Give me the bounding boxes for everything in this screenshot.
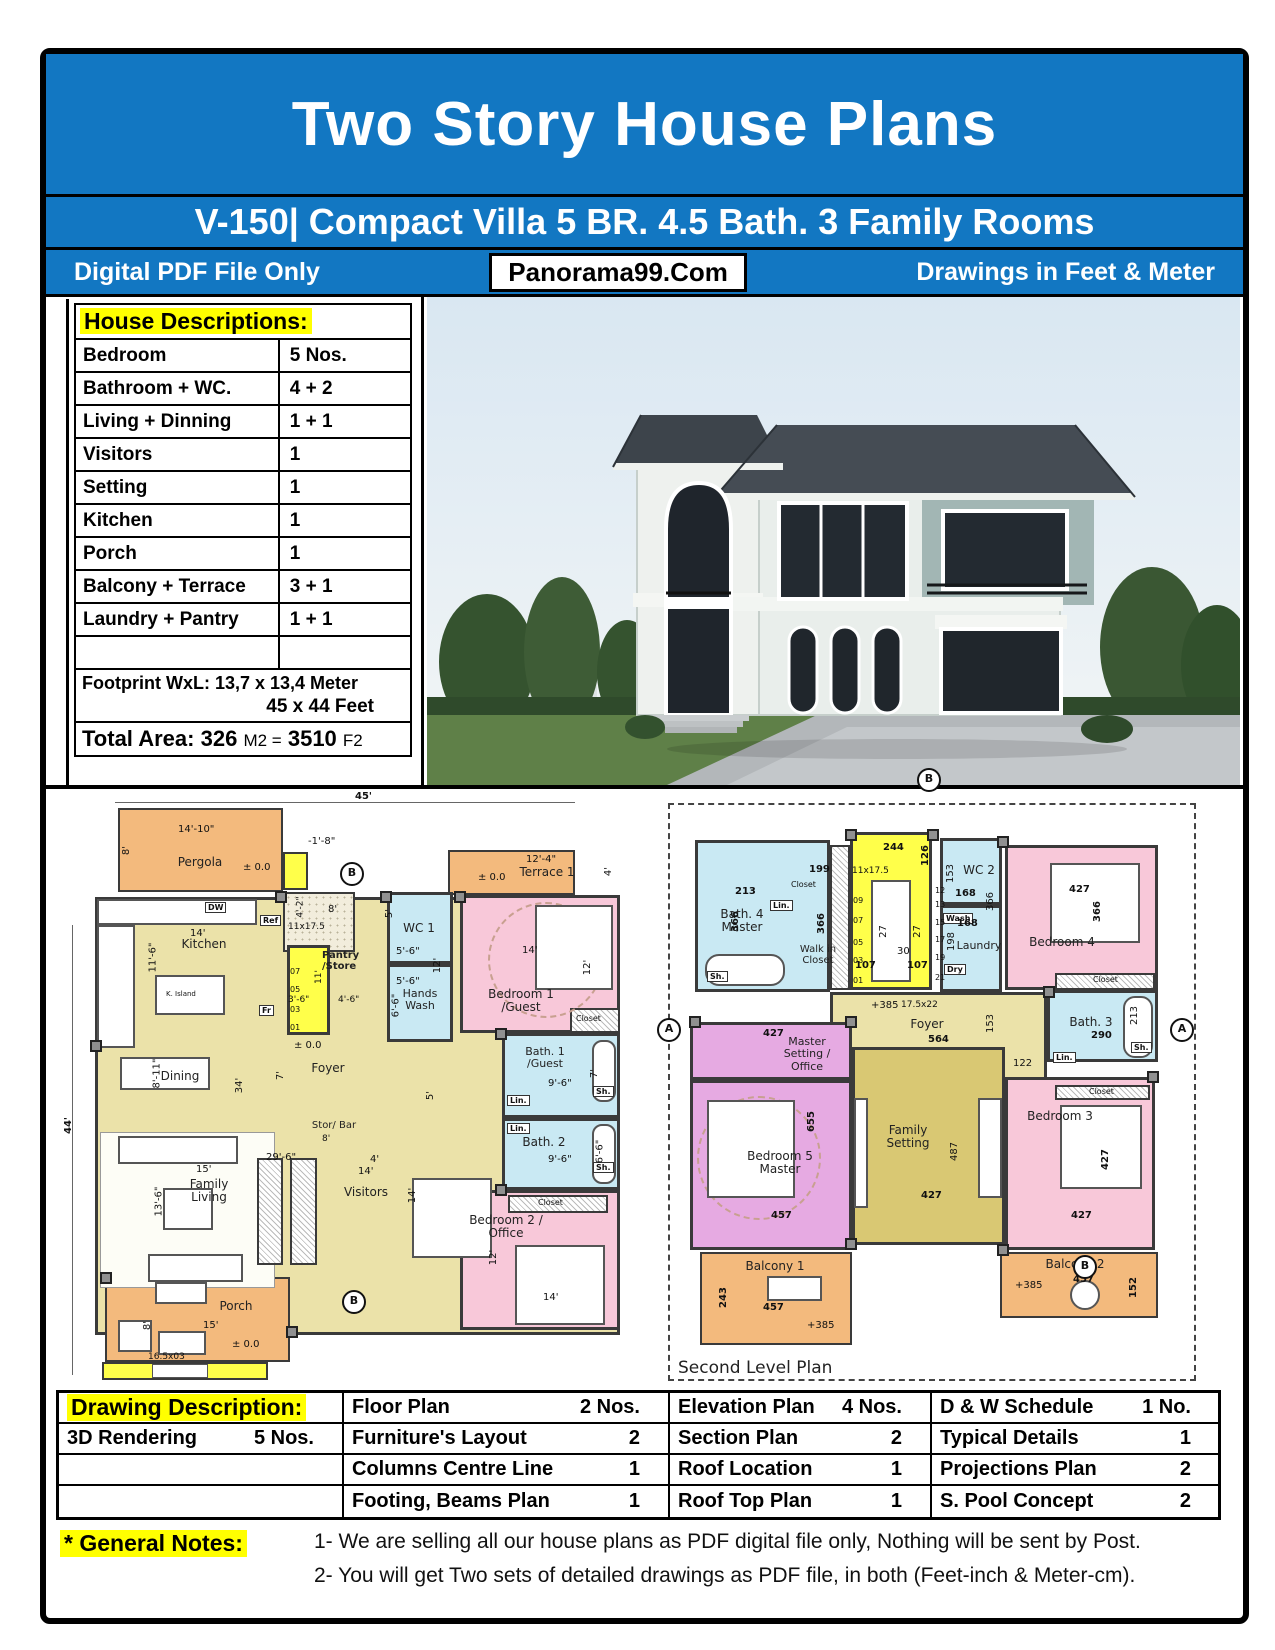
row-value: 1 xyxy=(280,510,301,532)
table-cell: Projections Plan2 xyxy=(932,1455,1219,1486)
cell-label: Elevation Plan xyxy=(678,1396,815,1419)
flyer-page: Two Story House Plans V-150| Compact Vil… xyxy=(0,0,1275,1650)
flyer-frame: Two Story House Plans V-150| Compact Vil… xyxy=(40,48,1249,1624)
column xyxy=(997,1244,1009,1256)
column xyxy=(380,891,392,903)
pillar xyxy=(257,1158,283,1265)
room-label: Bath. 3 xyxy=(1063,1016,1119,1029)
row-value: 3 + 1 xyxy=(280,576,333,598)
cell-value: 2 xyxy=(1180,1458,1211,1481)
dim-label: 15' xyxy=(203,1320,218,1331)
stair-number: 12 xyxy=(935,886,945,895)
second-level-plan: Bath. 4 Master Walk in Closet WC 2 Laund… xyxy=(645,768,1225,1393)
table-title-row: House Descriptions: xyxy=(76,305,410,338)
balcony-sofa xyxy=(767,1276,822,1301)
dim-label: 14' xyxy=(358,1166,373,1177)
row-value: 1 + 1 xyxy=(280,609,333,631)
note-line-2: 2- You will get Two sets of detailed dra… xyxy=(314,1564,1135,1588)
dim-label: 15' xyxy=(196,1164,211,1175)
row-label: Bedroom xyxy=(76,340,280,371)
cell-label: Projections Plan xyxy=(940,1458,1097,1481)
dim-label: 199 xyxy=(809,864,830,875)
stair-number: 01 xyxy=(290,1023,300,1032)
dim-label: 12' xyxy=(488,1250,499,1265)
pillar xyxy=(290,1158,317,1265)
walkin-wardrobe xyxy=(830,845,850,990)
dim-label: 427 xyxy=(1069,884,1090,895)
table-cell: 3D Rendering5 Nos. xyxy=(59,1424,344,1455)
table-row: Bathroom + WC.4 + 2 xyxy=(76,371,410,404)
dim-label: 126 xyxy=(920,845,931,866)
linen-tag: Lin. xyxy=(507,1123,530,1134)
dim-label: 4'-6" xyxy=(338,995,359,1005)
table-row: Balcony + Terrace3 + 1 xyxy=(76,569,410,602)
stair-number: 17 xyxy=(935,935,945,944)
dim-label: 244 xyxy=(883,842,904,853)
dim-label: 11' xyxy=(314,970,324,984)
cell-label: Typical Details xyxy=(940,1427,1079,1450)
shower-tag: Sh. xyxy=(593,1086,614,1097)
cell-label: 3D Rendering xyxy=(67,1427,197,1450)
column xyxy=(845,1016,857,1028)
dim-label: 13'-6" xyxy=(154,1186,165,1216)
column xyxy=(689,1016,701,1028)
closet-label: Closet xyxy=(576,1014,601,1023)
total-area-m2: 326 xyxy=(201,726,238,751)
dim-label: 27 xyxy=(878,925,889,938)
dim-label: 9'-6" xyxy=(548,1154,572,1165)
dim-label: 213 xyxy=(735,886,756,897)
shower-tag: Sh. xyxy=(593,1162,614,1173)
table-row-empty xyxy=(76,635,410,668)
island-label: K. Island xyxy=(166,990,196,998)
sofa xyxy=(148,1254,243,1282)
cell-label: Section Plan xyxy=(678,1427,798,1450)
cell-label: Columns Centre Line xyxy=(352,1458,553,1481)
kitchen-counter-left xyxy=(97,925,135,1048)
column xyxy=(286,1326,298,1338)
column xyxy=(845,829,857,841)
table-cell: Roof Location1 xyxy=(670,1455,932,1486)
dim-label: 16.5x03 xyxy=(148,1352,185,1362)
dim-label: 8' xyxy=(328,904,337,915)
dim-label: 243 xyxy=(718,1287,729,1308)
shower-tag: Sh. xyxy=(707,971,728,982)
dim-label: 8' xyxy=(121,846,132,855)
room-pergola xyxy=(118,808,283,892)
stair-number: 07 xyxy=(853,916,863,925)
general-notes-title: * General Notes: xyxy=(60,1530,247,1557)
dim-label: 29'-6" xyxy=(266,1152,296,1163)
units-note: Drawings in Feet & Meter xyxy=(916,258,1215,287)
row-value: 1 xyxy=(280,444,301,466)
dim-label: 14' xyxy=(522,945,537,956)
column xyxy=(454,891,466,903)
column xyxy=(90,1040,102,1052)
table-cell: Roof Top Plan1 xyxy=(670,1486,932,1517)
website-link[interactable]: Panorama99.Com xyxy=(489,253,747,292)
row-label: Kitchen xyxy=(76,505,280,536)
row-value: 1 xyxy=(280,543,301,565)
page-title: Two Story House Plans xyxy=(292,89,997,160)
dim-label: 4' xyxy=(370,1154,379,1165)
dim-label: 14' xyxy=(543,1292,558,1303)
dim-label: 153 xyxy=(945,864,956,883)
row-label xyxy=(76,637,280,668)
dim-label: 11x17.5 xyxy=(852,866,889,876)
stair-number: 03 xyxy=(290,1005,300,1014)
dim-label: 366 xyxy=(816,913,827,934)
freezer-tag: Fr xyxy=(259,1005,274,1016)
dim-label: 366 xyxy=(1092,901,1103,922)
stair-number: 09 xyxy=(853,896,863,905)
room-label: Pantry /Store xyxy=(322,950,372,972)
dim-label: 564 xyxy=(928,1034,949,1045)
table-cell xyxy=(59,1455,344,1486)
row-value: 1 xyxy=(280,477,301,499)
dim-label: 152 xyxy=(1128,1277,1139,1298)
info-row: House Descriptions: Bedroom5 Nos. Bathro… xyxy=(46,297,1243,789)
general-notes: * General Notes: 1- We are selling all o… xyxy=(46,1522,1243,1606)
sofa xyxy=(978,1098,1002,1198)
room-label: Bedroom 5 Master xyxy=(741,1150,819,1177)
room-label: Family Setting xyxy=(877,1124,939,1151)
stair-number: 03 xyxy=(853,956,863,965)
cell-value: 2 xyxy=(891,1427,922,1450)
table-cell xyxy=(59,1486,344,1517)
table-row: Setting1 xyxy=(76,470,410,503)
section-marker-a: A xyxy=(657,1018,681,1042)
porch-step-center xyxy=(152,1364,208,1378)
room-label: Master Setting / Office xyxy=(767,1036,847,1073)
linen-tag: Lin. xyxy=(1053,1052,1076,1063)
row-value: 5 Nos. xyxy=(280,345,347,367)
house-descriptions-title: House Descriptions: xyxy=(80,308,312,334)
footprint-row: Footprint WxL: 13,7 x 13,4 Meter 45 x 44… xyxy=(76,668,410,721)
room-label: WC 2 xyxy=(957,864,1001,877)
dim-label: 8'-11" xyxy=(152,1058,163,1088)
cell-label: Furniture's Layout xyxy=(352,1427,527,1450)
dim-label: 427 xyxy=(1071,1210,1092,1221)
dim-label: 30 xyxy=(897,946,910,957)
linen-tag: Lin. xyxy=(770,900,793,911)
dim-line xyxy=(115,802,575,803)
dim-label: 153 xyxy=(985,1014,996,1033)
kitchen-counter xyxy=(97,899,257,925)
room-label: Porch xyxy=(208,1300,264,1313)
header-title-band: Two Story House Plans xyxy=(46,54,1243,197)
room-label: Bedroom 3 xyxy=(1019,1110,1101,1123)
dim-label: 9'-6" xyxy=(548,1078,572,1089)
table-row: Bedroom5 Nos. xyxy=(76,338,410,371)
row-label: Setting xyxy=(76,472,280,503)
header-subtitle-band: V-150| Compact Villa 5 BR. 4.5 Bath. 3 F… xyxy=(46,197,1243,250)
dim-label: 427 xyxy=(921,1190,942,1201)
stair-number: 21 xyxy=(935,973,945,982)
cell-label: S. Pool Concept xyxy=(940,1490,1093,1513)
cell-label: Roof Top Plan xyxy=(678,1490,812,1513)
bed xyxy=(535,905,613,990)
dim-label: -1'-8" xyxy=(308,836,335,847)
table-cell: S. Pool Concept2 xyxy=(932,1486,1219,1517)
table-cell: Furniture's Layout2 xyxy=(344,1424,670,1455)
stair-number: 13 xyxy=(935,900,945,909)
dishwasher-tag: DW xyxy=(205,902,226,913)
dim-label: 168 xyxy=(957,918,978,929)
sofa xyxy=(118,1136,238,1164)
divider xyxy=(66,299,69,785)
room-label: Pergola xyxy=(168,856,232,869)
dim-label: 168 xyxy=(955,888,976,899)
dim-label: 213 xyxy=(1129,1006,1140,1025)
cell-value: 1 xyxy=(629,1490,660,1513)
pdf-only-note: Digital PDF File Only xyxy=(74,258,320,287)
cell-value: 4 Nos. xyxy=(842,1396,922,1419)
house-descriptions-panel: House Descriptions: Bedroom5 Nos. Bathro… xyxy=(46,297,424,785)
cell-value: 1 xyxy=(1180,1427,1211,1450)
dim-label: 7' xyxy=(275,1071,286,1080)
dim-label: 198 xyxy=(946,932,957,951)
entry-steps xyxy=(283,852,308,890)
section-marker-b: B xyxy=(340,862,364,886)
cell-label: Roof Location xyxy=(678,1458,812,1481)
note-line-1: 1- We are selling all our house plans as… xyxy=(314,1530,1141,1554)
dim-label: 12' xyxy=(582,960,593,975)
room-label: Bedroom 2 / Office xyxy=(462,1214,550,1241)
room-label: Terrace 1 xyxy=(512,866,582,879)
dim-label: 8' xyxy=(142,1321,153,1330)
column xyxy=(1147,1071,1159,1083)
stair-number: 15 xyxy=(935,918,945,927)
column xyxy=(997,836,1009,848)
room-label: Balcony 1 xyxy=(737,1260,813,1273)
dim-label: ± 0.0 xyxy=(232,1339,259,1350)
cell-value: 1 xyxy=(891,1490,922,1513)
table-cell: Columns Centre Line1 xyxy=(344,1455,670,1486)
room-label: Bedroom 4 xyxy=(1023,936,1101,949)
dim-label: 5'-6" xyxy=(396,946,420,957)
room-label: WC 1 xyxy=(396,922,442,935)
table-row: Porch1 xyxy=(76,536,410,569)
dim-label: +385 xyxy=(1015,1280,1042,1291)
dim-label: 5' xyxy=(425,1091,436,1100)
column xyxy=(495,1028,507,1040)
table-cell: Drawing Description: xyxy=(59,1393,344,1424)
dim-label: 457 xyxy=(763,1302,784,1313)
dim-label: 7' xyxy=(589,1069,600,1078)
row-value: 4 + 2 xyxy=(280,378,333,400)
bed xyxy=(515,1245,605,1325)
shower-tag: Sh. xyxy=(1131,1042,1152,1053)
dim-label: 8' xyxy=(322,1134,330,1144)
house-rendering-photo xyxy=(427,297,1240,785)
row-label: Laundry + Pantry xyxy=(76,604,280,635)
cell-value: 1 No. xyxy=(1142,1396,1211,1419)
section-marker-b: B xyxy=(917,768,941,792)
cell-value: 1 xyxy=(891,1458,922,1481)
dim-label: 4'-2" xyxy=(296,896,306,917)
column xyxy=(1043,986,1055,998)
dim-label: 12'-4" xyxy=(526,854,556,865)
dim-label: 107 xyxy=(907,960,928,971)
header-info-band: Digital PDF File Only Panorama99.Com Dra… xyxy=(46,250,1243,297)
room-label: Foyer xyxy=(897,1018,957,1031)
dim-label: +385 xyxy=(807,1320,834,1331)
column xyxy=(495,1184,507,1196)
dim-label: 12' xyxy=(432,958,443,973)
dim-label: 6'-6" xyxy=(594,1140,605,1164)
dim-label: 44' xyxy=(63,1117,74,1134)
house-descriptions-table: House Descriptions: Bedroom5 Nos. Bathro… xyxy=(74,303,412,757)
room-label: Bath. 4 Master xyxy=(711,908,773,935)
room-label: Walk in Closet xyxy=(793,944,843,966)
total-area-label: Total Area: xyxy=(82,726,194,751)
column xyxy=(275,891,287,903)
stair-number: 07 xyxy=(290,967,300,976)
dim-line xyxy=(72,925,73,1375)
dim-label: 14' xyxy=(190,928,205,939)
dim-label: 457 xyxy=(771,1210,792,1221)
dim-label: 27 xyxy=(912,925,923,938)
column xyxy=(845,1238,857,1250)
dim-label: 427 xyxy=(1100,1149,1111,1170)
section-marker-b: B xyxy=(342,1290,366,1314)
dim-label: ± 0.0 xyxy=(478,872,505,883)
column xyxy=(100,1272,112,1284)
stair-number: 19 xyxy=(935,953,945,962)
tv-console xyxy=(854,1098,868,1208)
room-label: Bath. 1 /Guest xyxy=(512,1046,578,1071)
cell-value: 2 Nos. xyxy=(580,1396,660,1419)
dim-label: 655 xyxy=(806,1111,817,1132)
table-cell: D & W Schedule1 No. xyxy=(932,1393,1219,1424)
dim-label: 4' xyxy=(603,867,614,876)
dim-label: 122 xyxy=(1013,1058,1032,1069)
total-area-f2-unit: F2 xyxy=(343,731,363,750)
fridge-tag: Ref xyxy=(260,915,281,926)
cell-label: Footing, Beams Plan xyxy=(352,1490,550,1513)
table-cell: Footing, Beams Plan1 xyxy=(344,1486,670,1517)
room-label: Visitors xyxy=(332,1186,400,1199)
closet-label: Closet xyxy=(538,1198,563,1207)
table-cell: Section Plan2 xyxy=(670,1424,932,1455)
stair-number: 05 xyxy=(290,985,300,994)
cell-label: Floor Plan xyxy=(352,1396,450,1419)
table-row: Kitchen1 xyxy=(76,503,410,536)
dim-label: 17.5x22 xyxy=(901,1000,938,1010)
total-area-f2: 3510 xyxy=(288,726,337,751)
dim-label: ± 0.0 xyxy=(294,1040,321,1051)
dim-label: 366 xyxy=(985,892,996,911)
table-cell: Elevation Plan4 Nos. xyxy=(670,1393,932,1424)
dim-label: 366 xyxy=(730,911,741,932)
table-row: Laundry + Pantry1 + 1 xyxy=(76,602,410,635)
row-label: Bathroom + WC. xyxy=(76,373,280,404)
room-label: Bath. 2 xyxy=(516,1136,572,1149)
cell-value: 2 xyxy=(1180,1490,1211,1513)
room-label: Laundry xyxy=(953,940,1005,952)
dim-label: 290 xyxy=(1091,1030,1112,1041)
row-label: Living + Dinning xyxy=(76,406,280,437)
dim-label: 11'-6" xyxy=(148,942,159,972)
dim-label: ± 0.0 xyxy=(243,862,270,873)
table-row: Living + Dinning1 + 1 xyxy=(76,404,410,437)
closet-label: Closet xyxy=(1093,975,1118,984)
footprint-feet: 45 x 44 Feet xyxy=(82,696,404,718)
porch-sofa xyxy=(155,1282,207,1304)
total-area-row: Total Area: 326 M2 = 3510 F2 xyxy=(76,721,410,755)
total-area-m2-unit: M2 = xyxy=(243,731,281,750)
room-label: Bedroom 1 /Guest xyxy=(480,988,562,1015)
dim-label: 45' xyxy=(355,791,372,802)
dim-label: 34' xyxy=(234,1078,245,1093)
dryer-tag: Dry xyxy=(944,964,966,975)
drawing-description-table: Drawing Description: Floor Plan2 Nos. El… xyxy=(56,1390,1221,1520)
dim-label: 14' xyxy=(407,1188,418,1203)
stair-number: 05 xyxy=(853,938,863,947)
first-level-plan: 45' 44' xyxy=(60,790,638,1390)
footprint-meters: Footprint WxL: 13,7 x 13,4 Meter xyxy=(82,673,404,694)
cell-label: D & W Schedule xyxy=(940,1396,1093,1419)
plan-code-subtitle: V-150| Compact Villa 5 BR. 4.5 Bath. 3 F… xyxy=(195,201,1095,243)
dim-label: 487 xyxy=(949,1142,960,1161)
table-cell: Typical Details1 xyxy=(932,1424,1219,1455)
section-marker-b: B xyxy=(1073,1255,1097,1279)
dim-label: 3'-6" xyxy=(288,995,309,1005)
dim-label: 14'-10" xyxy=(178,824,214,835)
linen-tag: Lin. xyxy=(507,1095,530,1106)
dim-label: +385 xyxy=(871,1000,898,1011)
dim-label: 5' xyxy=(384,909,395,918)
plan-title: Second Level Plan xyxy=(678,1358,832,1378)
section-marker-a: A xyxy=(1170,1018,1194,1042)
dim-label: 11x17.5 xyxy=(288,922,325,932)
dim-label: 6'-6" xyxy=(390,994,401,1018)
row-label: Porch xyxy=(76,538,280,569)
room-label: Foyer xyxy=(298,1062,358,1075)
table-cell: Floor Plan2 Nos. xyxy=(344,1393,670,1424)
dim-label: 5'-6" xyxy=(396,976,420,987)
room-label: Kitchen xyxy=(172,938,236,951)
cell-value: 1 xyxy=(629,1458,660,1481)
closet-label: Closet xyxy=(791,880,816,889)
dim-label: 427 xyxy=(763,1028,784,1039)
room-label: Family Living xyxy=(178,1178,240,1205)
row-label: Balcony + Terrace xyxy=(76,571,280,602)
row-value: 1 + 1 xyxy=(280,411,333,433)
closet-label: Closet xyxy=(1089,1087,1114,1096)
cell-value: 5 Nos. xyxy=(254,1427,334,1450)
room-label: Stor/ Bar xyxy=(303,1120,365,1131)
column xyxy=(927,829,939,841)
drawing-description-title: Drawing Description: xyxy=(67,1394,306,1421)
row-label: Visitors xyxy=(76,439,280,470)
stair-number: 01 xyxy=(853,976,863,985)
cell-value: 2 xyxy=(629,1427,660,1450)
table-row: Visitors1 xyxy=(76,437,410,470)
